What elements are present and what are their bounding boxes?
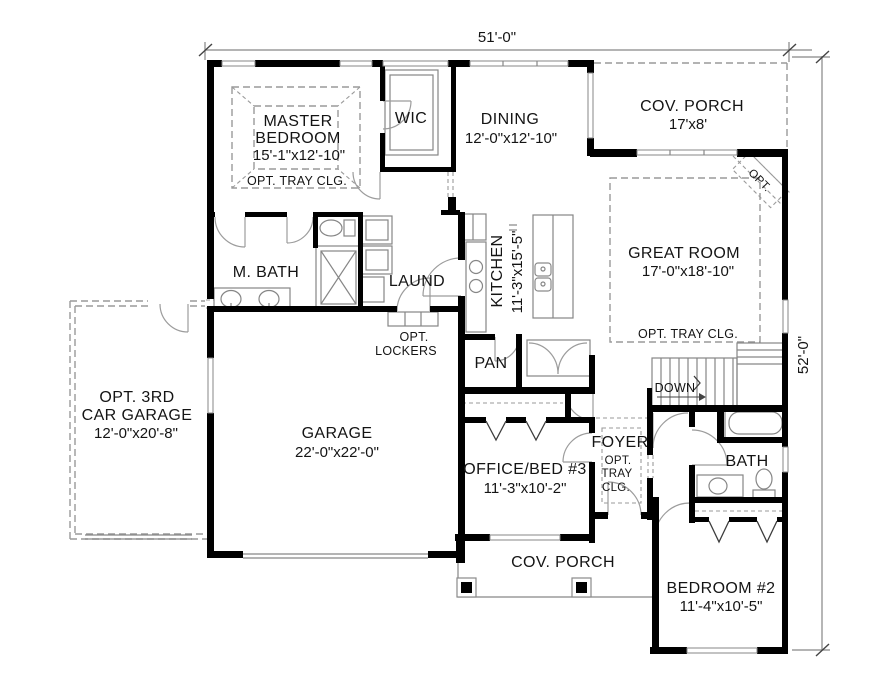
cov-porch-bottom-label: COV. PORCH (511, 554, 615, 571)
office-label: OFFICE/BED #3 (463, 461, 586, 478)
floor-plan-page: 51'-0" 52'-0" OPT. (0, 0, 888, 685)
island-sink (535, 263, 551, 276)
master-bedroom-size: 15'-1"x12'-10" (253, 147, 345, 164)
lockers-note2: LOCKERS (375, 344, 437, 358)
opt-garage-label2: CAR GARAGE (82, 407, 193, 424)
window (783, 447, 788, 472)
opt-garage-size: 12'-0"x20'-8" (94, 425, 178, 442)
office-size: 11'-3"x10'-2" (484, 480, 567, 497)
bath-sink (709, 478, 727, 494)
lockers-bench (388, 312, 438, 326)
window (637, 150, 737, 155)
great-room-tray-note: OPT. TRAY CLG. (638, 327, 738, 341)
window (208, 358, 213, 413)
dimension-width-label: 51'-0" (478, 29, 516, 46)
bath-label: BATH (725, 453, 768, 470)
stairs-down-label: DOWN (655, 381, 696, 395)
island-sink (535, 278, 551, 291)
garage-size: 22'-0"x22'-0" (295, 444, 379, 461)
window (687, 648, 757, 653)
garage-label: GARAGE (302, 425, 373, 442)
dining-size: 12'-0"x12'-10" (465, 130, 557, 147)
window (783, 300, 788, 333)
m-bath-label: M. BATH (233, 264, 300, 281)
window (588, 73, 593, 138)
laundry-label: LAUND (389, 273, 445, 290)
window (470, 61, 568, 66)
master-bedroom-label2: BEDROOM (255, 130, 340, 147)
bedroom2-label: BEDROOM #2 (667, 580, 776, 597)
great-room-size: 17'-0"x18'-10" (642, 263, 734, 280)
great-room-label: GREAT ROOM (628, 245, 740, 262)
cov-porch-top-size: 17'x8' (669, 116, 707, 133)
cooktop-burner (470, 280, 483, 293)
wic-label: WIC (395, 110, 427, 127)
toilet (756, 469, 772, 489)
pantry-label: PAN (475, 355, 508, 372)
toilet-tank (344, 220, 355, 236)
cooktop-burner (470, 261, 483, 274)
opt-garage-label1: OPT. 3RD (99, 389, 174, 406)
master-bedroom-label: MASTER (263, 113, 332, 130)
toilet (320, 220, 342, 236)
kitchen-label: KITCHEN (489, 234, 506, 307)
bathtub-basin (729, 412, 782, 434)
window (340, 61, 372, 66)
dining-label: DINING (481, 111, 539, 128)
kitchen-size: 11'-3"x15'-5" (509, 231, 526, 314)
lockers-note1: OPT. (400, 330, 429, 344)
door-swings (160, 101, 727, 538)
foyer-tray-note2: TRAY (601, 468, 632, 480)
foyer-tray-note1: OPT. (605, 455, 632, 467)
master-tray-note: OPT. TRAY CLG. (247, 174, 347, 188)
window (383, 61, 448, 66)
cov-porch-top-label: COV. PORCH (640, 98, 744, 115)
floor-plan-drawing: 51'-0" 52'-0" OPT. (0, 0, 888, 685)
foyer-label: FOYER (591, 434, 648, 451)
room-labels: MASTER BEDROOM 15'-1"x12'-10" OPT. TRAY … (82, 98, 776, 615)
window (222, 61, 255, 66)
window (490, 535, 560, 540)
foyer-tray-note3: CLG. (602, 482, 630, 494)
bedroom2-size: 11'-4"x10'-5" (680, 598, 763, 615)
laundry-sink (362, 277, 384, 302)
dimension-height-label: 52'-0" (795, 336, 812, 374)
staircase (652, 343, 783, 407)
toilet-tank (753, 490, 775, 498)
